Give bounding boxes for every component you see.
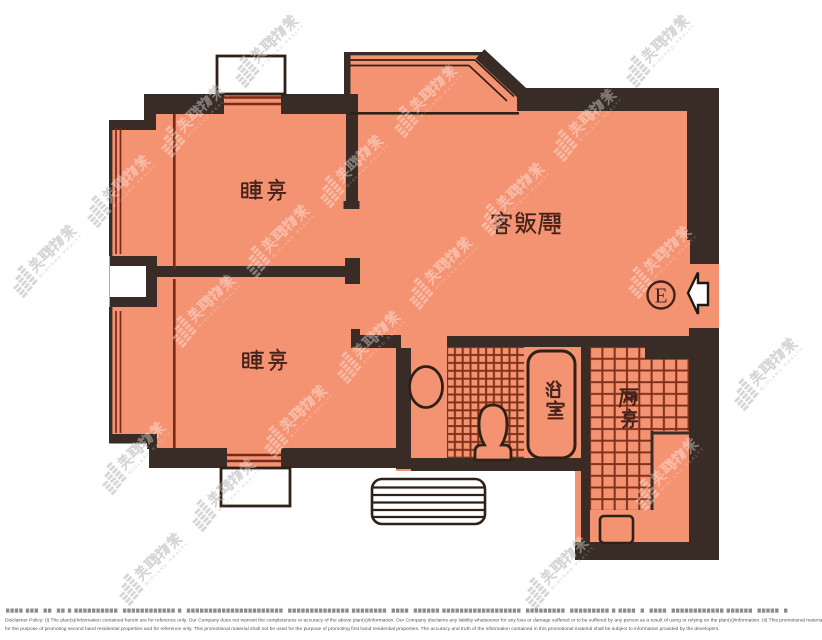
svg-text:E: E: [655, 284, 668, 308]
svg-text:for the purpose of promoting s: for the purpose of promoting second hand…: [5, 626, 720, 632]
svg-text:Disclaimer Policy: (i) The pla: Disclaimer Policy: (i) The plan(s)/infor…: [5, 618, 822, 624]
